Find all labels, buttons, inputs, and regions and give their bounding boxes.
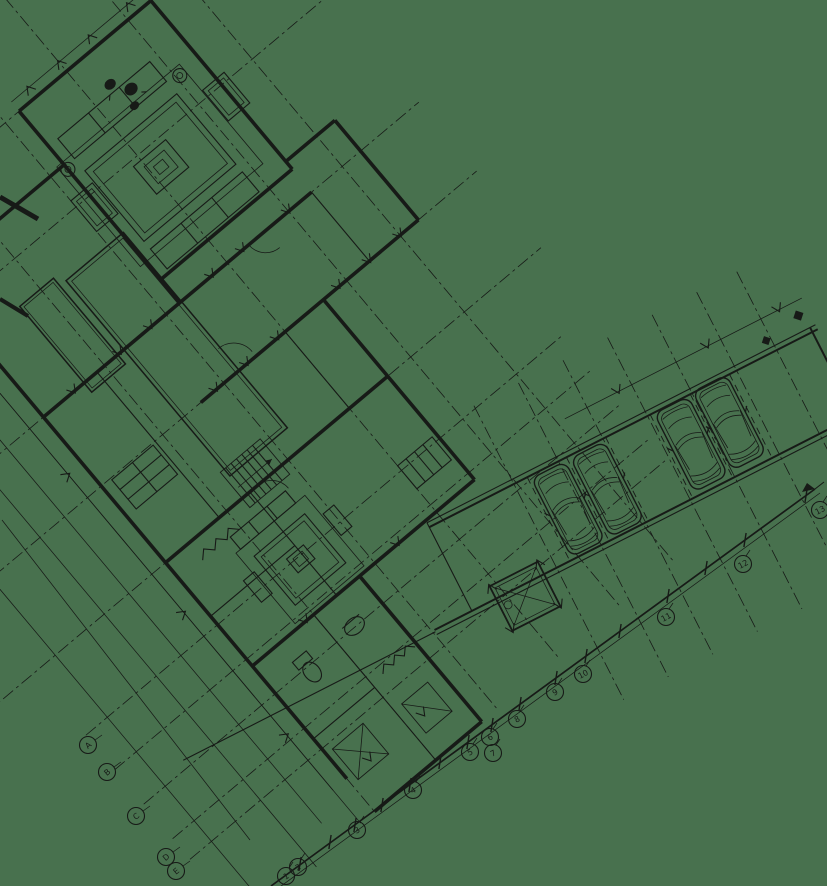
site-plan-canvas: 1 2 3 4 5 6 7 8	[0, 0, 827, 886]
architectural-site-plan: 1 2 3 4 5 6 7 8	[0, 0, 827, 886]
background	[0, 0, 827, 886]
